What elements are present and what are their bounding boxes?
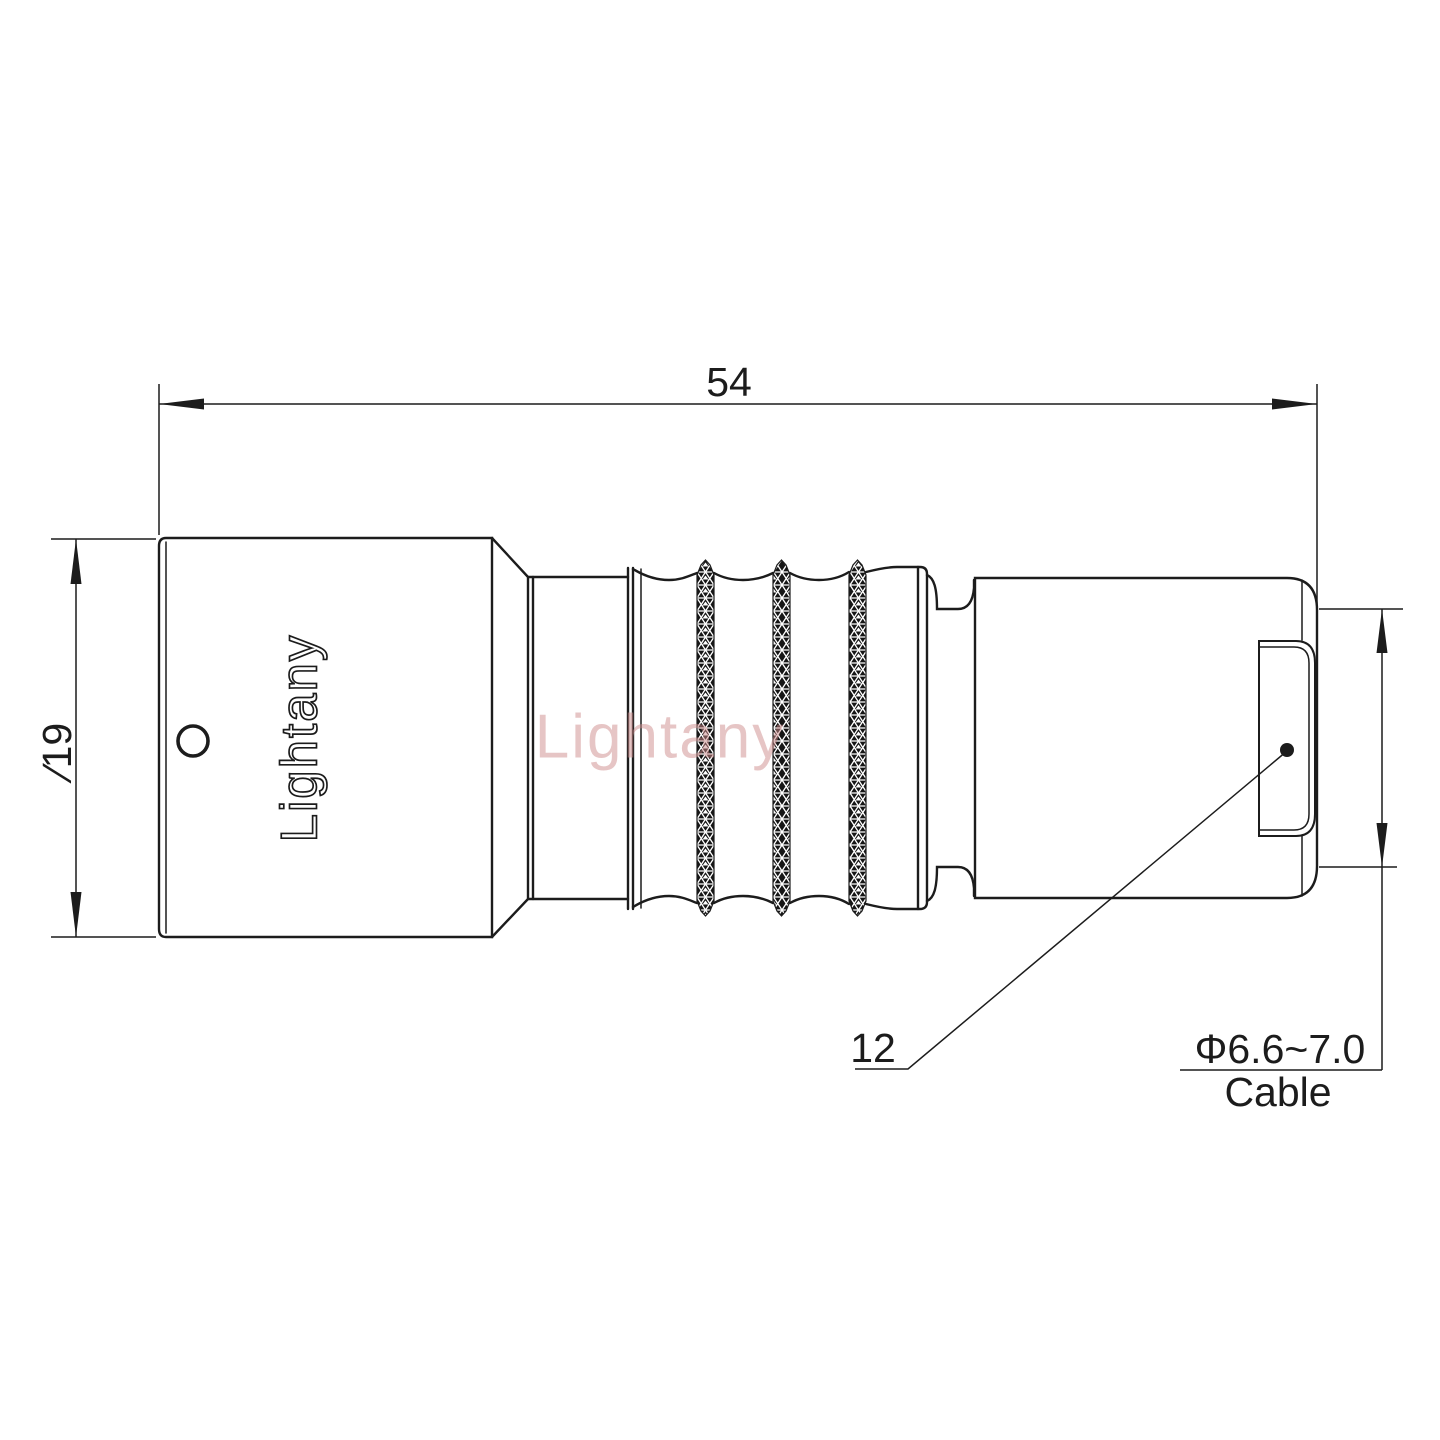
dimension-label-54: 54: [706, 359, 752, 405]
dimension-label-d19: ∕19: [34, 723, 80, 784]
arrowhead-down: [71, 892, 82, 937]
body-engraving-text: Lightany: [271, 634, 328, 843]
dimension-label-12: 12: [850, 1025, 896, 1071]
knurl-end-collar: [918, 567, 927, 909]
taper-cone: [492, 538, 533, 937]
arrowhead-left: [159, 399, 204, 410]
cable-bushing-outline: [1259, 641, 1315, 836]
arrowhead-up: [71, 539, 82, 584]
technical-drawing-page: 54 ∕19 12 Φ6.6~7.0 Cable Light: [0, 0, 1440, 1440]
arrowhead-right: [1272, 399, 1317, 410]
dimension-label-cable-range: Φ6.6~7.0: [1195, 1026, 1366, 1072]
dimension-front-diameter: ∕19: [34, 539, 156, 937]
arrowhead-down: [1377, 823, 1388, 867]
neck-groove: [927, 575, 974, 901]
knurl-band-3: [849, 560, 866, 916]
watermark-text: Lightany: [535, 703, 785, 772]
arrowhead-up: [1377, 609, 1388, 653]
dimension-label-cable: Cable: [1224, 1069, 1331, 1115]
connector-drawing-svg: 54 ∕19 12 Φ6.6~7.0 Cable Light: [0, 0, 1440, 1440]
